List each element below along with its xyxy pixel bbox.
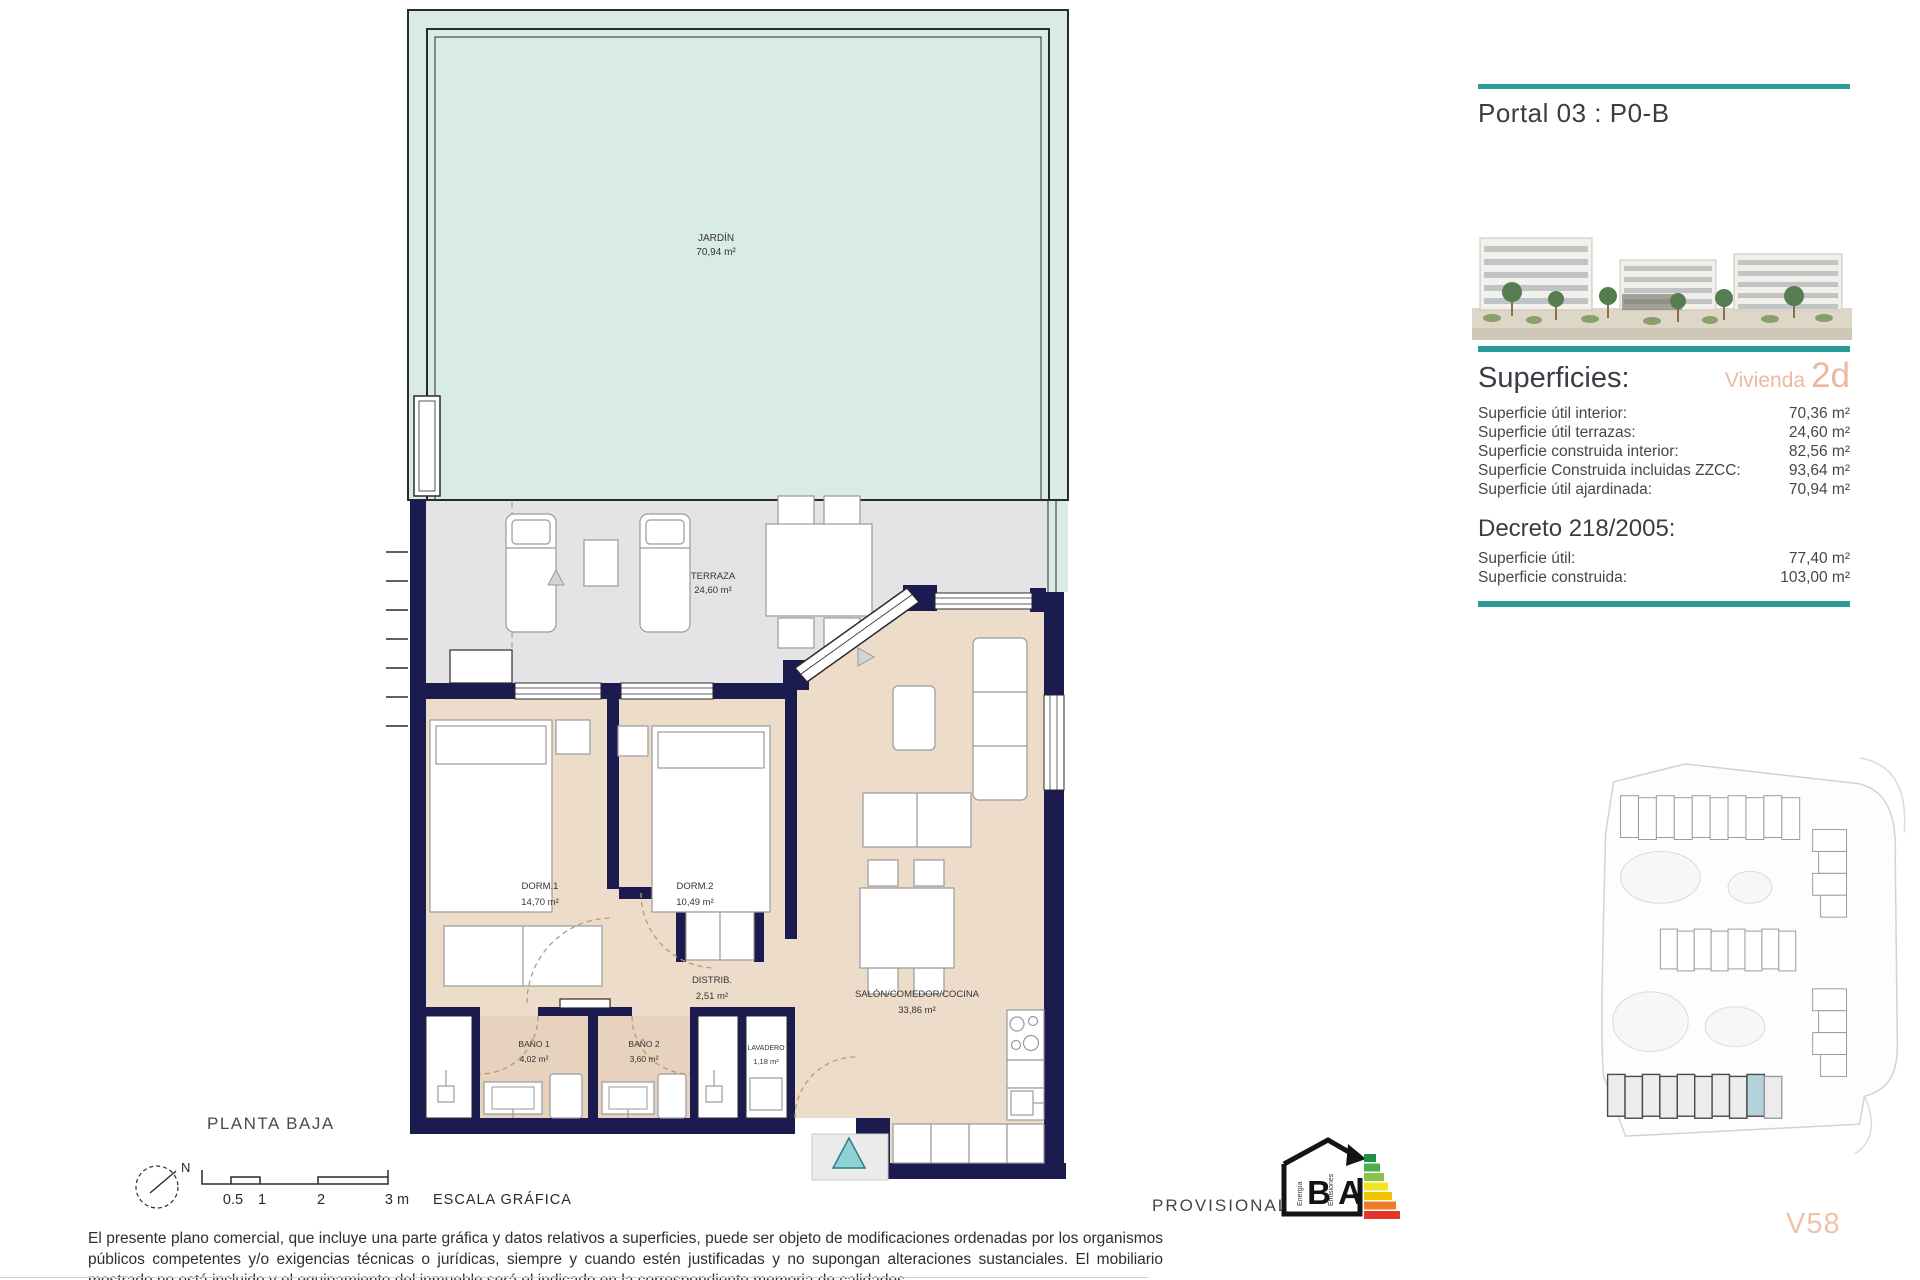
north-arrow-icon: N: [136, 1160, 190, 1208]
site-key-plan: [1565, 738, 1910, 1166]
site-block-row3-highlighted: [1608, 1074, 1782, 1118]
dorm2-label: DORM.2: [677, 881, 714, 892]
bano1-area: 4,02 m²: [520, 1054, 549, 1064]
boundary-ticks: [386, 552, 408, 726]
divider-bottom: [1478, 601, 1850, 607]
site-block-row1: [1621, 796, 1800, 840]
svg-text:3 m: 3 m: [385, 1192, 409, 1208]
surface-row: Superficie Construida incluidas ZZCC:93,…: [1478, 461, 1850, 480]
vivienda-value: 2d: [1811, 356, 1850, 395]
terrace-area-value: 24,60 m²: [694, 585, 732, 596]
distrib-area: 2,51 m²: [696, 991, 728, 1002]
site-block-row2: [1660, 929, 1795, 971]
divider-superficies: [1478, 346, 1850, 352]
floor-plan-sheet: JARDÍN 70,94 m² TERRAZA 24,60 m²: [0, 0, 1920, 1280]
bano2-area: 3,60 m²: [630, 1054, 659, 1064]
highlighted-unit: [1747, 1074, 1764, 1116]
page-title: Portal 03 : P0-B: [1478, 98, 1670, 129]
floor-plan-drawing: JARDÍN 70,94 m² TERRAZA 24,60 m²: [320, 0, 1100, 1200]
scale-labels: 0.5 1 2 3 m ESCALA GRÁFICA: [223, 1191, 572, 1208]
garden-area-value: 70,94 m²: [696, 247, 736, 258]
dorm1-area: 14,70 m²: [521, 897, 559, 908]
dorm1-label: DORM.1: [522, 881, 559, 892]
terrace-label: TERRAZA: [691, 571, 736, 582]
scale-and-north: N 0.5 1 2 3 m ESCALA GRÁFICA: [80, 1130, 640, 1220]
unit-code: V58: [1786, 1208, 1841, 1241]
svg-text:0.5: 0.5: [223, 1192, 243, 1208]
bano2-label: BAÑO 2: [628, 1039, 659, 1049]
garden-area: JARDÍN 70,94 m²: [408, 10, 1068, 500]
energy-rating-icon: B A Energía Emisiones: [1262, 1126, 1402, 1226]
surface-row: Superficie útil ajardinada:70,94 m²: [1478, 480, 1850, 499]
surface-row: Superficie útil terrazas:24,60 m²: [1478, 423, 1850, 442]
lavadero-area: 1,18 m²: [753, 1057, 779, 1066]
decreto-heading: Decreto 218/2005:: [1478, 515, 1850, 543]
garden-label: JARDÍN: [698, 231, 734, 244]
bano1-label: BAÑO 1: [518, 1039, 549, 1049]
superficies-heading: Superficies:: [1478, 362, 1630, 395]
svg-text:2: 2: [317, 1192, 325, 1208]
building-render-image: [1472, 216, 1852, 340]
dorm2-area: 10,49 m²: [676, 897, 714, 908]
scale-bar: [202, 1170, 388, 1184]
svg-text:A: A: [1338, 1174, 1362, 1211]
decreto-row: Superficie construida:103,00 m²: [1478, 568, 1850, 587]
page-edge-line: [0, 1277, 1148, 1278]
surface-row: Superficie construida interior:82,56 m²: [1478, 442, 1850, 461]
salon-area: 33,86 m²: [898, 1005, 936, 1016]
north-label: N: [181, 1160, 190, 1175]
svg-text:Energía: Energía: [1297, 1181, 1304, 1206]
divider-top: [1478, 84, 1850, 89]
salon-label: SALÓN/COMEDOR/COCINA: [855, 989, 980, 1000]
surface-row: Superficie útil interior:70,36 m²: [1478, 404, 1850, 423]
energy-bars: [1364, 1154, 1400, 1219]
vivienda-label: Vivienda: [1725, 369, 1805, 392]
disclaimer-text: El presente plano comercial, que incluye…: [88, 1228, 1163, 1280]
lavadero-label: LAVADERO: [747, 1045, 785, 1052]
superficies-panel: Superficies: Vivienda2d Superficie útil …: [1478, 356, 1850, 607]
distrib-label: DISTRIB.: [692, 975, 732, 986]
scale-caption: ESCALA GRÁFICA: [433, 1191, 572, 1208]
decreto-row: Superficie útil:77,40 m²: [1478, 549, 1850, 568]
svg-text:1: 1: [258, 1192, 266, 1208]
svg-text:Emisiones: Emisiones: [1328, 1173, 1335, 1206]
